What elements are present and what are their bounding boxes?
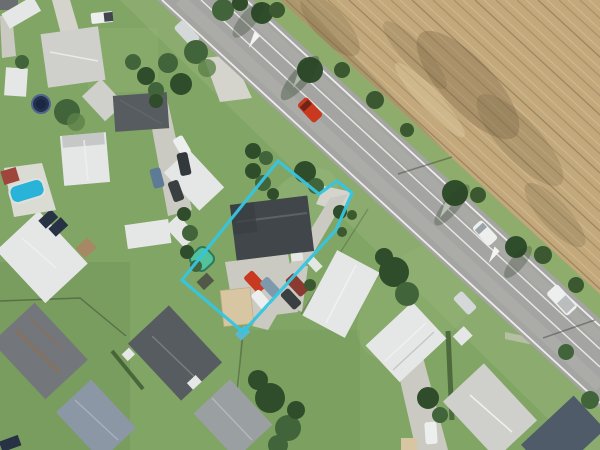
hedge-bush: [337, 227, 347, 237]
hedge-bush: [334, 62, 350, 78]
garage-door: [291, 252, 304, 261]
target-garage-roof: [220, 288, 254, 327]
hedge-bush: [304, 279, 316, 291]
tree: [158, 53, 178, 73]
hedge-bush: [182, 225, 198, 241]
tree: [432, 407, 448, 423]
verge-bush: [558, 344, 574, 360]
target-house-wing: [230, 202, 257, 235]
tree: [149, 94, 163, 108]
tree: [125, 54, 141, 70]
tree: [137, 67, 155, 85]
tree: [170, 73, 192, 95]
tree: [287, 401, 305, 419]
hedge-bush: [347, 210, 357, 220]
hedge-bush: [177, 207, 191, 221]
aerial-photo: [0, 0, 600, 450]
tree: [417, 387, 439, 409]
hedge-bush: [470, 187, 486, 203]
shed-roof: [401, 438, 417, 450]
tree: [15, 55, 29, 69]
hedge-bush: [180, 245, 194, 259]
tree: [375, 248, 393, 266]
garden-bush: [267, 188, 279, 200]
verge-bush: [581, 391, 599, 409]
ute-tray: [104, 12, 114, 22]
hedge-bush: [534, 246, 552, 264]
hedge-bush: [400, 123, 414, 137]
tree: [67, 113, 85, 131]
trampoline-mat: [36, 99, 46, 109]
car: [424, 422, 438, 445]
tree: [259, 151, 273, 165]
tree: [198, 59, 216, 77]
tree: [212, 0, 234, 21]
shed-roof: [4, 67, 28, 96]
hedge-bush: [366, 91, 384, 109]
hedge-bush: [269, 2, 285, 18]
tree: [248, 370, 268, 390]
tree: [395, 282, 419, 306]
tree: [245, 143, 261, 159]
hedge-bush: [568, 277, 584, 293]
